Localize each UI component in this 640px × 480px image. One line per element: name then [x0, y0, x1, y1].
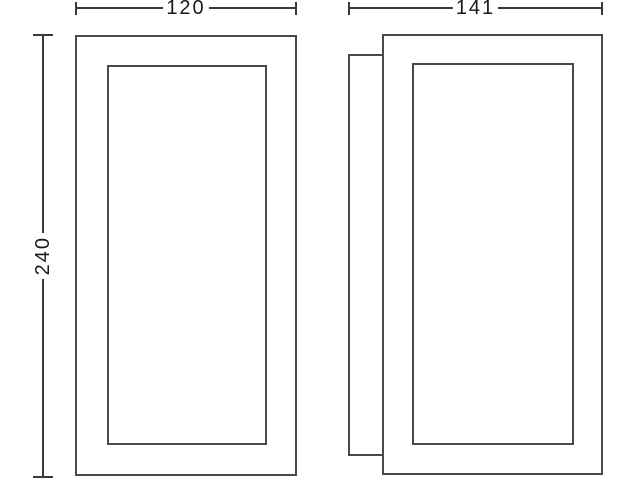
dim-line	[209, 7, 295, 9]
dim-line	[77, 7, 163, 9]
dim-tick-right	[295, 2, 297, 15]
dim-tick-right	[601, 2, 603, 15]
dim-height: 240	[33, 34, 53, 478]
dim-tick-bottom	[33, 476, 53, 478]
dim-side-depth: 141	[348, 1, 603, 15]
dim-line	[498, 7, 601, 9]
dim-line	[42, 279, 44, 476]
dim-height-label: 240	[33, 236, 53, 275]
side-view-back-plate	[348, 54, 386, 456]
dim-line	[42, 36, 44, 233]
dimension-drawing: 120 141 240	[0, 0, 640, 480]
dim-line	[350, 7, 453, 9]
front-view-glass-panel	[107, 65, 267, 445]
dim-front-width-label: 120	[166, 1, 205, 15]
dim-front-width: 120	[75, 1, 297, 15]
dim-side-depth-label: 141	[456, 1, 495, 15]
side-view-glass-panel	[412, 63, 574, 445]
